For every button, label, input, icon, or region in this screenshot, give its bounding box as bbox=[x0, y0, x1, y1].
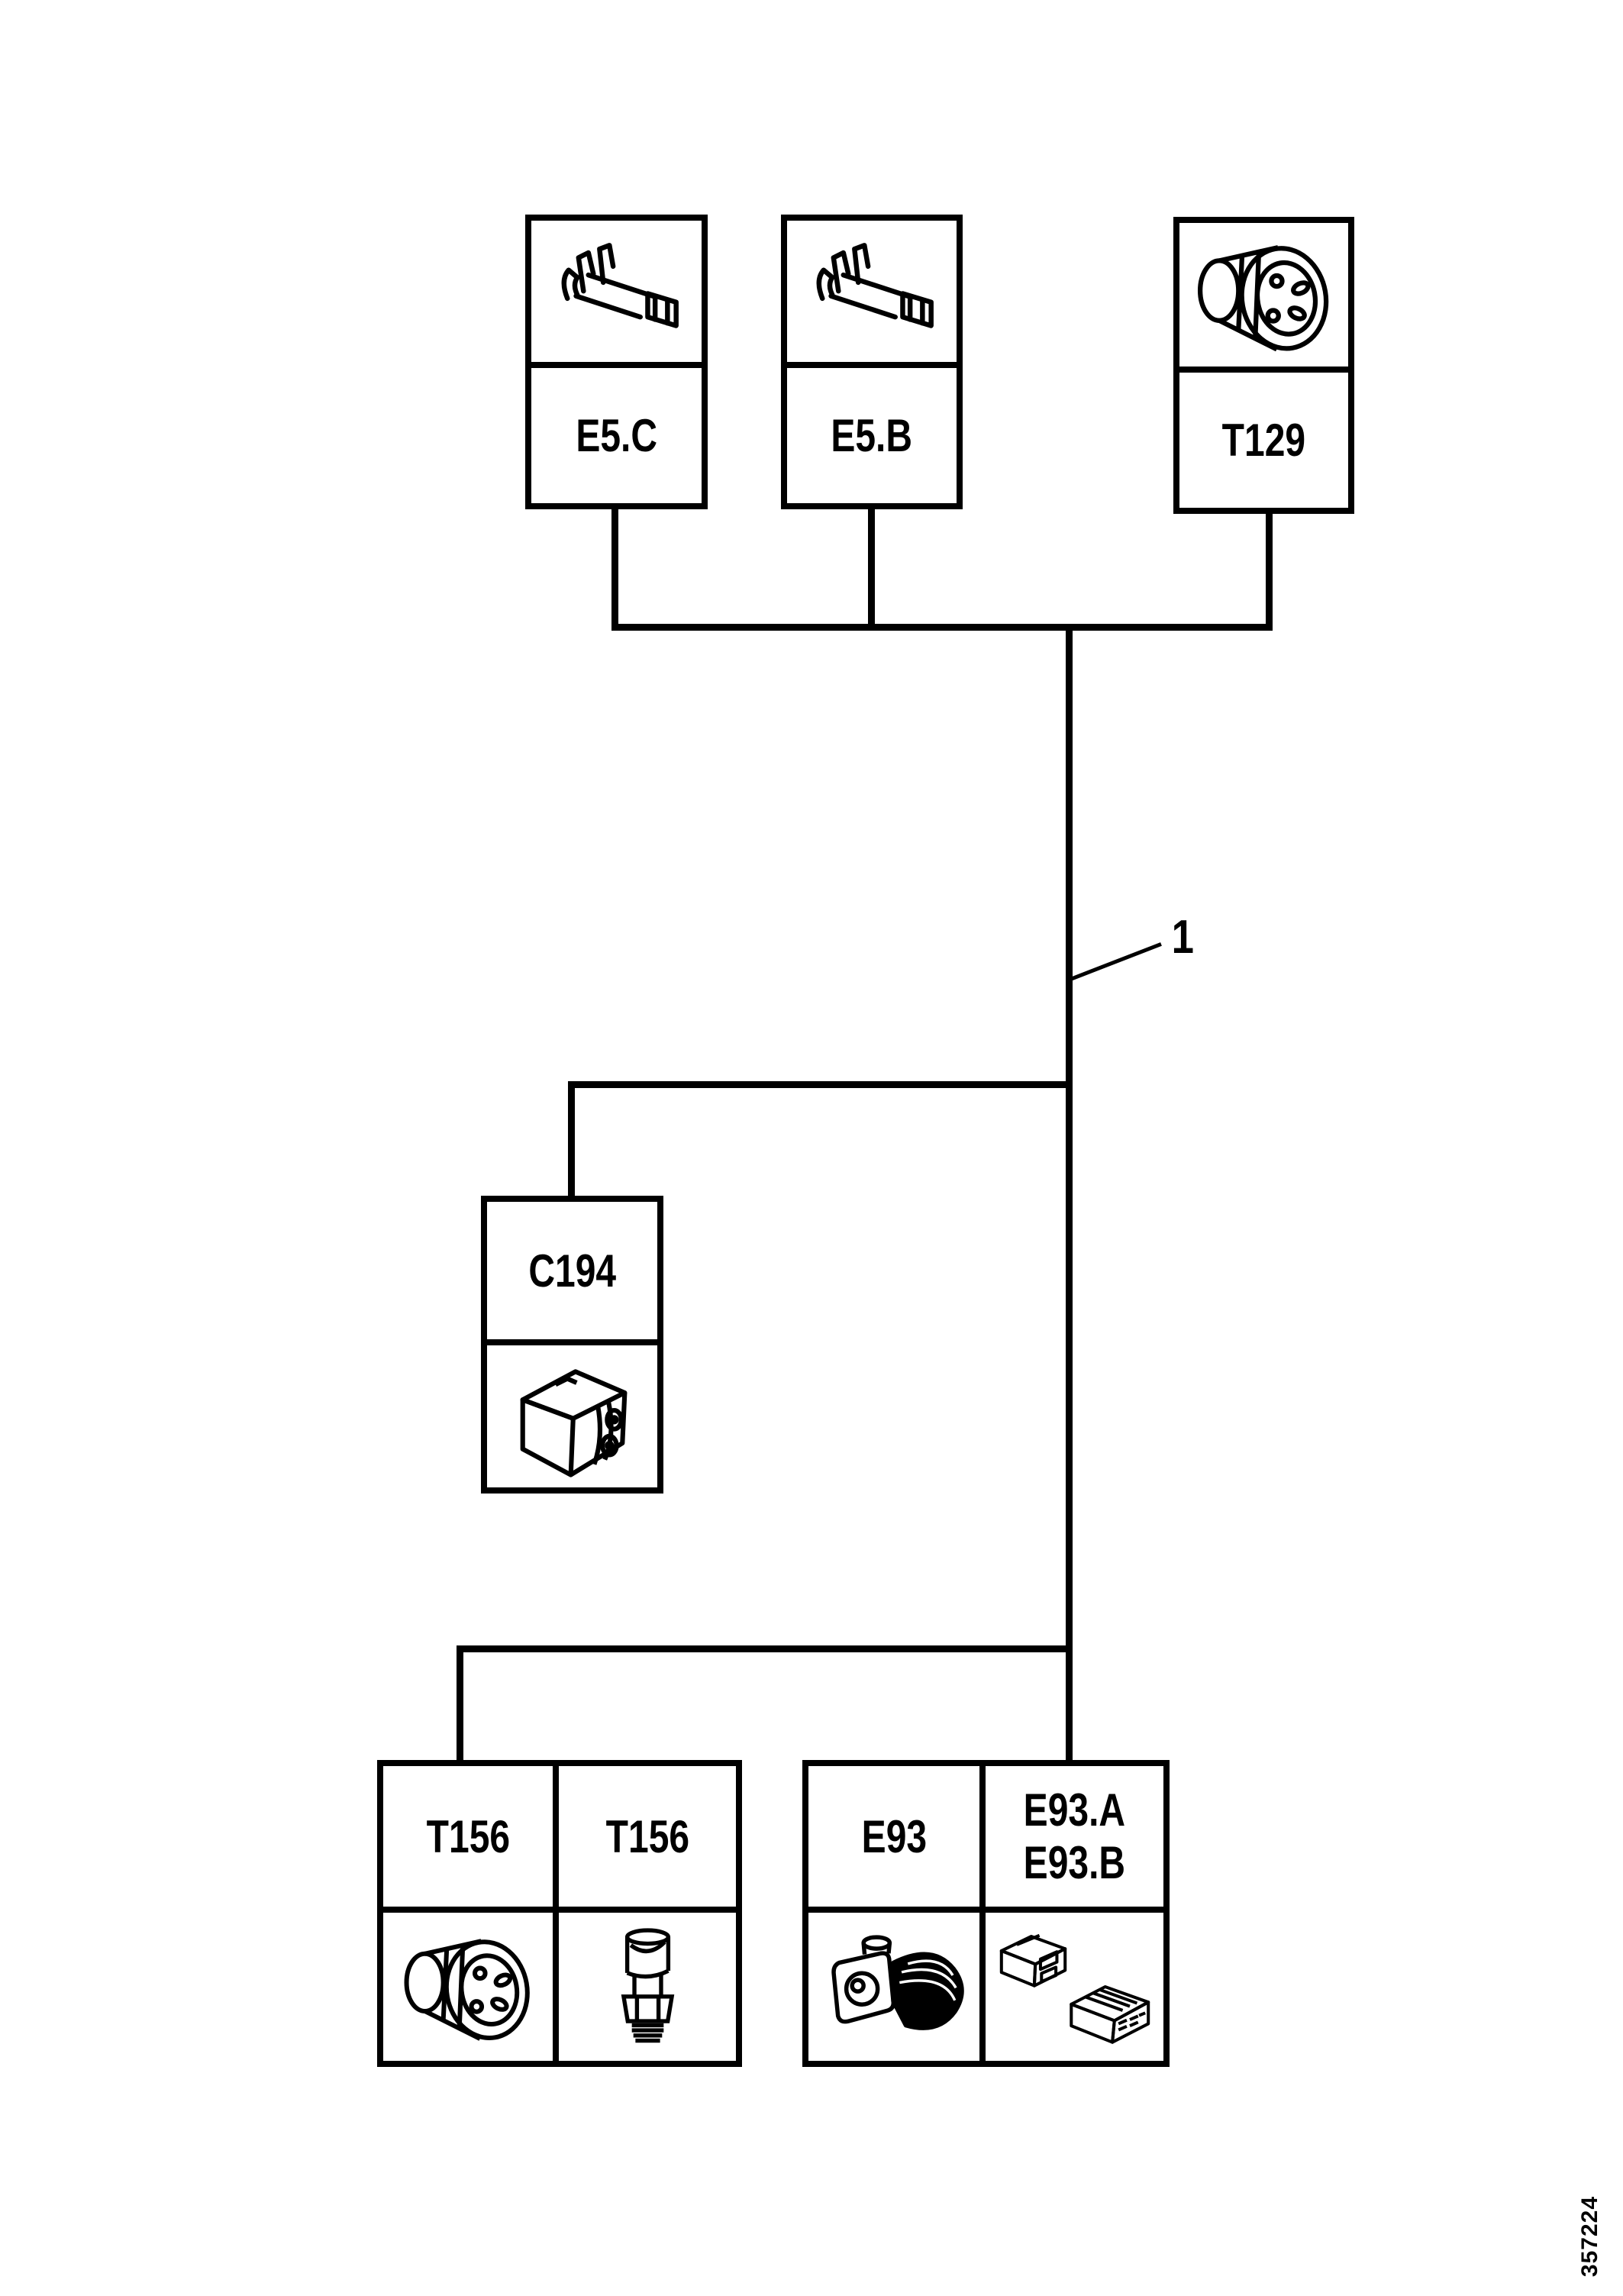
component-label: E93.A E93.B bbox=[1024, 1784, 1125, 1889]
pressure-sensor-icon bbox=[609, 1923, 686, 2051]
crimp-terminal-icon bbox=[549, 239, 685, 344]
callout-number: 1 bbox=[1172, 910, 1194, 964]
wire-e5c-drop bbox=[611, 504, 618, 631]
wire-t129-drop bbox=[1266, 510, 1273, 631]
component-box-c194: C194 bbox=[481, 1196, 663, 1494]
heater-motor-icon bbox=[816, 1924, 973, 2049]
wire-c194-branch bbox=[568, 1081, 1073, 1088]
relay-housing-icon bbox=[499, 1349, 646, 1484]
component-label: C194 bbox=[528, 1245, 616, 1297]
component-label-line1: E93.A bbox=[1024, 1784, 1125, 1836]
component-image-cell bbox=[787, 221, 957, 362]
wire-t156-drop bbox=[457, 1645, 463, 1763]
component-image-cell bbox=[383, 1913, 559, 2061]
wiring-diagram: 1 E5.C bbox=[0, 0, 1623, 2296]
wire-top-bus bbox=[611, 624, 1273, 631]
callout-leader-line bbox=[1066, 942, 1162, 983]
component-image-cell bbox=[808, 1913, 986, 2061]
component-label-cell: E5.B bbox=[787, 362, 957, 503]
component-box-e93: E93 E93.A E93.B bbox=[802, 1760, 1170, 2067]
wire-c194-drop bbox=[568, 1081, 575, 1199]
component-label-cell: E93 bbox=[808, 1766, 986, 1913]
component-label: T129 bbox=[1222, 414, 1305, 467]
component-image-cell bbox=[1179, 223, 1348, 367]
component-label-cell: C194 bbox=[487, 1202, 657, 1345]
component-label: E93 bbox=[861, 1810, 926, 1863]
component-box-e5c: E5.C bbox=[525, 215, 708, 509]
component-image-cell bbox=[559, 1913, 736, 2061]
component-label-cell: E5.C bbox=[531, 362, 702, 503]
component-box-t129: T129 bbox=[1173, 217, 1354, 514]
component-label-line2: E93.B bbox=[1024, 1836, 1125, 1889]
component-label: T156 bbox=[426, 1810, 509, 1863]
component-image-cell bbox=[531, 221, 702, 362]
wire-bottom-branch bbox=[457, 1645, 1073, 1652]
component-label-cell: T156 bbox=[559, 1766, 736, 1913]
wire-main-trunk bbox=[1066, 624, 1073, 1763]
round-connector-icon bbox=[1189, 231, 1339, 360]
component-label-cell: T156 bbox=[383, 1766, 559, 1913]
component-image-cell bbox=[986, 1913, 1163, 2061]
round-connector-icon bbox=[396, 1925, 540, 2049]
component-box-e5b: E5.B bbox=[781, 215, 963, 509]
component-label: E5.B bbox=[831, 409, 913, 462]
crimp-terminal-icon bbox=[804, 239, 940, 344]
component-box-t156: T156 T156 bbox=[377, 1760, 742, 2067]
component-label-cell: T129 bbox=[1179, 367, 1348, 508]
connector-housings-icon bbox=[990, 1925, 1160, 2049]
component-image-cell bbox=[487, 1345, 657, 1487]
wire-e5b-drop bbox=[868, 504, 875, 631]
component-label-cell: E93.A E93.B bbox=[986, 1766, 1163, 1913]
component-label: T156 bbox=[605, 1810, 689, 1863]
component-label: E5.C bbox=[576, 409, 657, 462]
figure-number: 357224 bbox=[1577, 2187, 1603, 2286]
